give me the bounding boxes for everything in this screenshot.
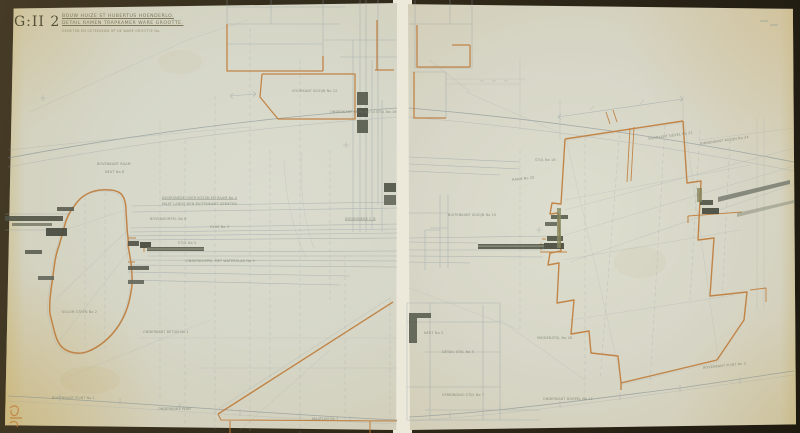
annotation-label: STIJL No 18	[535, 158, 556, 162]
left-sheet	[5, 3, 397, 430]
annotation-label: ONDERKANT DORPEL No 11	[543, 397, 593, 401]
annotation-label: DOORSNEDE OVER KOZIJN EN RAAM No 4	[162, 196, 237, 200]
title-lines: BOUW HUIZE ST HUBERTUS HOENDERLO. DETAIL…	[62, 14, 262, 35]
annotation-label: MAAT LANGS DEN BUITENKANT GEMETEN	[162, 202, 237, 206]
annotation-label: MIDDENSTIJL No 28	[537, 336, 572, 340]
archive-code: G:II 2	[14, 14, 60, 30]
annotation-label: VOORKANT KOZIJN No 12	[292, 89, 337, 93]
annotation-label: BOVENKANT PLINT No 1	[52, 396, 95, 400]
annotation-label: VERBINDING STIJL No 7	[442, 393, 484, 397]
annotation-label: BOVENDORPEL No 6	[150, 217, 187, 221]
annotation-label: DOORSNEDE C D	[345, 217, 376, 221]
annotation-label: KOLOM STEEN No 2	[62, 310, 97, 314]
annotation-label: ONDERKANT PLINT	[158, 407, 192, 411]
title-line-2: DETAIL RAMEN TRAPKAMER WARE GROOTTE.	[62, 21, 262, 28]
annotation-label: NEUT No 3	[424, 331, 443, 335]
annotation-label: ONDERDORPEL MET WATERSLAG No 9	[186, 259, 255, 263]
scanned-drawing-sheet-pair: G:II 2 BOUW HUIZE ST HUBERTUS HOENDERLO.…	[0, 0, 800, 433]
annotation-label: ONDERKANT BETON No 1	[143, 330, 189, 334]
annotation-label: BOVENKANT RAAM	[97, 162, 131, 166]
annotation-label: GLAS No 3	[210, 225, 229, 229]
annotation-label: ONDERKANT LATEI No 14	[330, 110, 375, 114]
annotation-label: NEUT No 8	[105, 170, 124, 174]
title-block: G:II 2 BOUW HUIZE ST HUBERTUS HOENDERLO.…	[14, 11, 60, 30]
title-line-3: GEMETEN EN GETEEKEND OP DE WARE GROOTTE …	[62, 28, 262, 35]
annotation-label: BUITENKANT KOZIJN No 10	[448, 213, 496, 217]
annotation-label: STIJL No 5	[178, 241, 196, 245]
annotation-label: STIJL No 16	[376, 110, 397, 114]
annotation-label: DETAIL STIJL No 5	[442, 350, 474, 354]
annotation-label: MAATLIJN No 7	[312, 417, 338, 421]
